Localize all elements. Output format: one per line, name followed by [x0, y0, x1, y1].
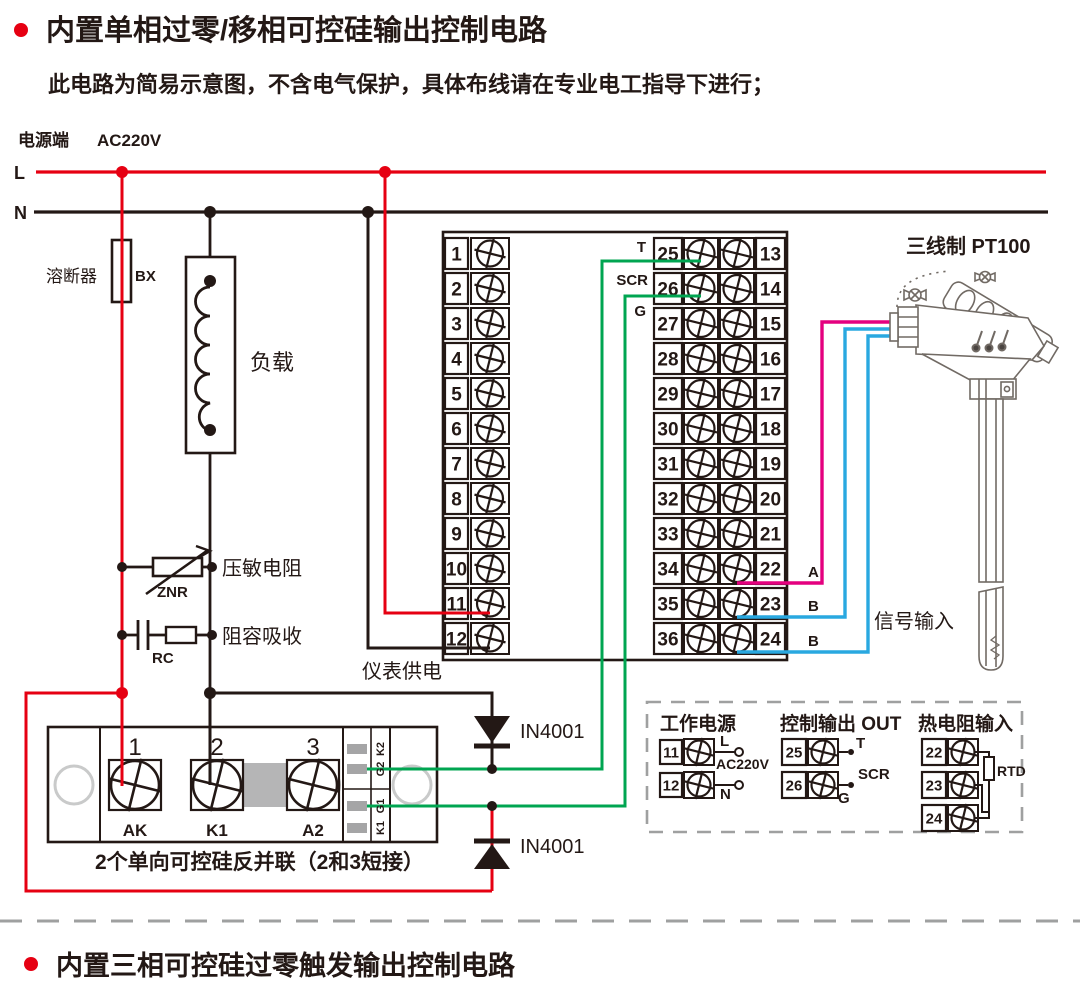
wire-b2-label: B — [808, 633, 819, 650]
gate-g1-label: G1 — [375, 799, 387, 814]
meter-supply-label: 仪表供电 — [362, 660, 442, 683]
terminal-number: 28 — [657, 349, 678, 370]
gate-pad-g2 — [347, 764, 367, 774]
module-terminal-2: 2 — [210, 734, 223, 761]
wire-a-label: A — [808, 564, 819, 581]
inset-rtd-title: 热电阻输入 — [918, 712, 1013, 735]
power-voltage-label: AC220V — [97, 131, 162, 150]
terminal-number: 36 — [657, 629, 678, 650]
terminal-number: 20 — [760, 489, 781, 510]
terminal-number: 30 — [657, 419, 678, 440]
page-title: 内置单相过零/移相可控硅输出控制电路 — [46, 13, 548, 47]
rc-resistor-symbol — [166, 627, 196, 643]
terminal-number: 13 — [760, 244, 781, 265]
diode1-label: IN4001 — [520, 721, 585, 743]
varistor-code-label: ZNR — [157, 584, 188, 601]
terminal-number: 3 — [451, 314, 462, 335]
terminal-number: 5 — [451, 384, 462, 405]
inset-rtd-label: RTD — [997, 763, 1026, 779]
terminal-number: 15 — [760, 314, 782, 335]
gate-pad-k1 — [347, 823, 367, 833]
sensor-head-body — [916, 305, 1044, 360]
terminal-number: 33 — [657, 524, 678, 545]
terminal-number: 10 — [446, 559, 467, 580]
power-side-label: 电源端 — [18, 130, 69, 150]
varistor-label: 压敏电阻 — [222, 557, 302, 580]
terminal-number: 8 — [451, 489, 462, 510]
gate-k2-label: K2 — [375, 742, 387, 756]
snubber-label: 阻容吸收 — [222, 625, 302, 648]
terminal-number: 1 — [451, 244, 462, 265]
eye-screw-icon — [904, 289, 926, 301]
wiring-diagram-page: 内置单相过零/移相可控硅输出控制电路 此电路为简易示意图，不含电气保护，具体布线… — [0, 0, 1080, 995]
mounting-hole-icon — [393, 766, 431, 804]
inset-n-label: N — [720, 786, 731, 803]
terminal-number: 12 — [663, 777, 680, 794]
gate-g2-label: G2 — [375, 762, 387, 777]
signal-input-label: 信号输入 — [874, 610, 954, 633]
inset-l-label: L — [720, 733, 729, 750]
terminal-number: 17 — [760, 384, 781, 405]
junction-dots — [116, 166, 497, 811]
footer-title: 内置三相可控硅过零触发输出控制电路 — [56, 950, 516, 981]
terminal-number: 23 — [926, 777, 943, 794]
terminal-number: 6 — [451, 419, 462, 440]
inset-output-title: 控制输出 OUT — [780, 712, 902, 735]
line-l-label: L — [14, 163, 25, 183]
terminal-number: 25 — [786, 744, 803, 761]
module-terminal-3: 3 — [306, 734, 319, 761]
inset-l-node — [735, 748, 743, 756]
inset-g-node — [848, 782, 854, 788]
gate-pad-k2 — [347, 744, 367, 754]
page-subtitle: 此电路为简易示意图，不含电气保护，具体布线请在专业电工指导下进行； — [48, 72, 774, 97]
inset-g-label: G — [838, 790, 850, 807]
terminal-number: 26 — [786, 777, 803, 794]
terminal-number: 24 — [926, 810, 943, 827]
terminal-number: 29 — [657, 384, 678, 405]
gate-pad-g1 — [347, 801, 367, 811]
module-note: 2个单向可控硅反并联（2和3短接） — [95, 850, 424, 874]
terminal-number: 9 — [451, 524, 462, 545]
eye-screw-icon — [975, 272, 995, 283]
diode2-label: IN4001 — [520, 836, 585, 858]
terminal-number: 32 — [657, 489, 678, 510]
mounting-hole-icon — [55, 766, 93, 804]
terminal-number: 18 — [760, 419, 781, 440]
g-label: G — [634, 303, 646, 320]
inset-scr-label: SCR — [858, 766, 890, 783]
fuse-code-label: BX — [135, 268, 156, 285]
sensor-stem — [979, 399, 1003, 670]
sensor-nut — [890, 307, 918, 347]
sensor-head-funnel — [922, 354, 1030, 381]
terminal-number: 27 — [657, 314, 678, 335]
terminal-number: 34 — [657, 559, 679, 580]
module-ak-label: AK — [123, 821, 148, 840]
scr-module-screws — [102, 752, 345, 817]
sensor-title: 三线制 PT100 — [906, 234, 1030, 258]
inset-power-title: 工作电源 — [660, 712, 736, 735]
diode2-symbol — [474, 844, 510, 869]
footer-bullet-icon — [24, 957, 38, 971]
terminal-number: 21 — [760, 524, 782, 545]
terminal-number: 35 — [657, 594, 679, 615]
rtd-resistor-symbol — [984, 757, 994, 780]
terminal-number: 2 — [451, 279, 462, 300]
module-a2-label: A2 — [302, 821, 324, 840]
snubber-code-label: RC — [152, 650, 174, 667]
inset-voltage-label: AC220V — [716, 756, 770, 772]
inset-n-node — [735, 781, 743, 789]
inset-t-label: T — [856, 735, 865, 752]
terminal-number: 14 — [760, 279, 782, 300]
terminal-number: 22 — [926, 744, 943, 761]
sensor-collar — [970, 379, 1016, 399]
terminal-number: 11 — [663, 744, 679, 761]
terminal-number: 31 — [657, 454, 679, 475]
inset-t-node — [848, 749, 854, 755]
terminal-number: 24 — [760, 629, 782, 650]
terminal-number: 19 — [760, 454, 781, 475]
load-label: 负载 — [250, 350, 294, 375]
module-terminal-1: 1 — [128, 734, 141, 761]
wire-b1-label: B — [808, 598, 819, 615]
terminal-number: 7 — [451, 454, 462, 475]
gate-k1-label: K1 — [375, 821, 387, 835]
circuit-diagram-canvas: 内置单相过零/移相可控硅输出控制电路 此电路为简易示意图，不含电气保护，具体布线… — [0, 0, 1080, 995]
terminal-number: 22 — [760, 559, 781, 580]
fuse-label: 溶断器 — [46, 267, 97, 286]
t-label: T — [637, 239, 646, 256]
title-bullet-icon — [14, 23, 28, 37]
scr-label: SCR — [616, 272, 648, 289]
line-n-label: N — [14, 203, 27, 223]
terminal-number: 23 — [760, 594, 781, 615]
diode1-symbol — [474, 716, 510, 743]
terminal-number: 4 — [451, 349, 462, 370]
terminal-number: 16 — [760, 349, 781, 370]
sensor-chain-line — [897, 271, 950, 307]
module-k1-label: K1 — [206, 821, 228, 840]
